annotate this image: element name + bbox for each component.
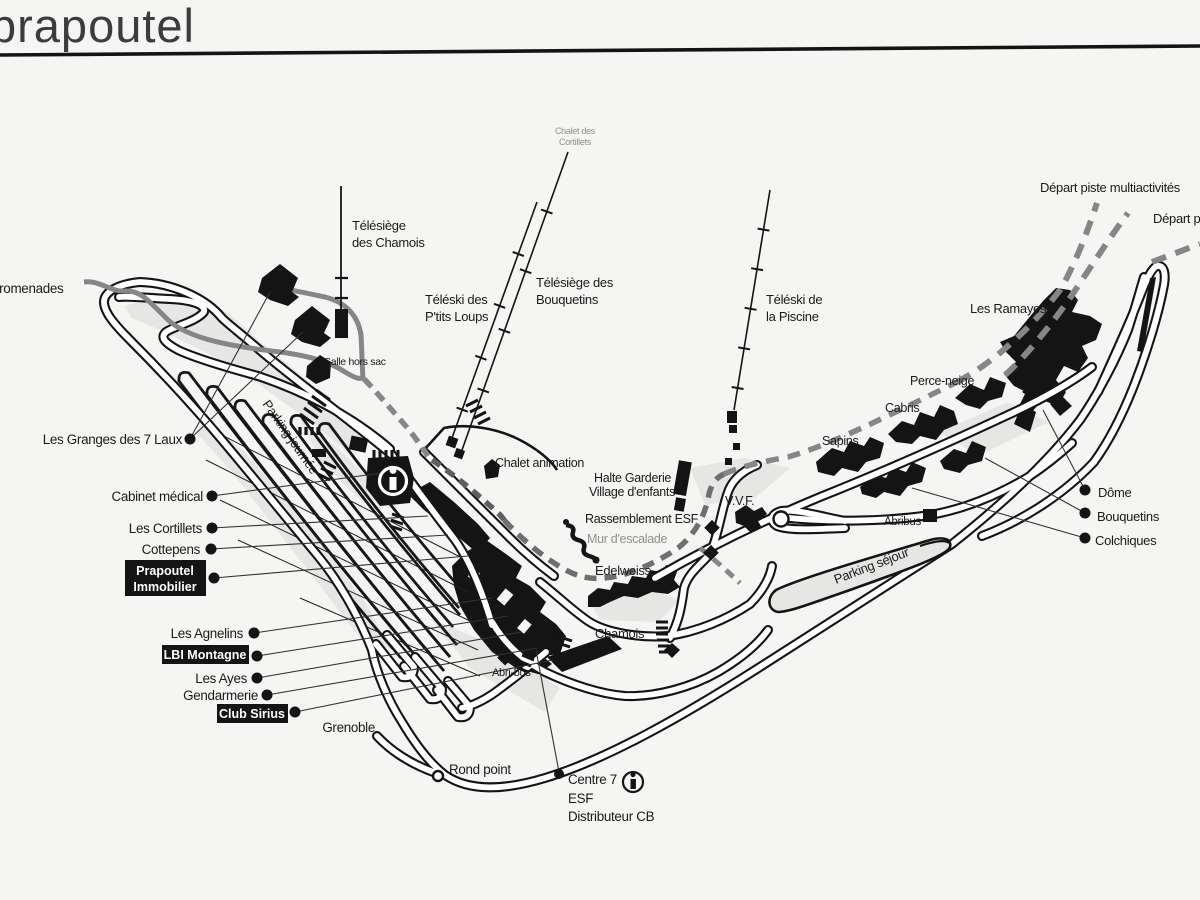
svg-text:Rond point: Rond point: [449, 762, 511, 777]
svg-text:promenades: promenades: [0, 281, 64, 296]
svg-text:Cortillets: Cortillets: [559, 137, 592, 147]
svg-text:Halte Garderie: Halte Garderie: [594, 471, 671, 485]
svg-text:Cabinet médical: Cabinet médical: [111, 489, 203, 504]
svg-text:Sapins: Sapins: [822, 434, 858, 448]
svg-text:Les Cortillets: Les Cortillets: [129, 521, 203, 536]
svg-text:Cabris: Cabris: [885, 401, 919, 415]
svg-text:Départ piste multiactivités: Départ piste multiactivités: [1040, 180, 1181, 195]
svg-text:V.V.F.: V.V.F.: [725, 494, 754, 508]
svg-text:Grenoble: Grenoble: [322, 720, 375, 735]
svg-text:Téléski de: Téléski de: [766, 292, 822, 307]
svg-text:Rassemblement ESF: Rassemblement ESF: [585, 512, 699, 526]
svg-text:Bouquetins: Bouquetins: [1097, 509, 1160, 524]
svg-text:LBI Montagne: LBI Montagne: [164, 648, 247, 662]
svg-text:Distributeur CB: Distributeur CB: [568, 809, 655, 824]
svg-text:Centre 7: Centre 7: [568, 772, 617, 787]
svg-text:Les Agnelins: Les Agnelins: [171, 626, 244, 641]
svg-text:Les Ramayes: Les Ramayes: [970, 301, 1047, 316]
svg-text:Dôme: Dôme: [1098, 485, 1132, 500]
svg-text:Cottepens: Cottepens: [142, 542, 201, 557]
svg-text:Chalet des: Chalet des: [555, 126, 596, 136]
svg-text:Téléski des: Téléski des: [425, 292, 488, 307]
svg-text:Chamois: Chamois: [595, 626, 645, 641]
svg-text:Télésiège: Télésiège: [352, 218, 406, 233]
svg-text:Les Granges des 7 Laux: Les Granges des 7 Laux: [43, 432, 183, 447]
svg-text:Salle hors sac: Salle hors sac: [324, 356, 386, 368]
svg-text:Village d'enfants: Village d'enfants: [589, 485, 675, 499]
svg-text:Perce-neige: Perce-neige: [910, 374, 974, 388]
svg-text:Télésiège des: Télésiège des: [536, 275, 614, 290]
svg-text:Immobilier: Immobilier: [133, 580, 196, 594]
svg-text:ESF: ESF: [568, 791, 593, 806]
svg-text:Colchiques: Colchiques: [1095, 533, 1157, 548]
svg-text:Chalet animation: Chalet animation: [495, 456, 584, 470]
svg-text:Prapoutel: Prapoutel: [136, 564, 194, 578]
svg-text:P'tits Loups: P'tits Loups: [425, 309, 489, 324]
svg-text:des Chamois: des Chamois: [352, 235, 425, 250]
svg-text:Mur d'escalade: Mur d'escalade: [587, 532, 668, 546]
svg-text:Abribus: Abribus: [884, 516, 921, 528]
svg-text:Edelweiss: Edelweiss: [595, 563, 652, 578]
svg-text:Les Ayes: Les Ayes: [195, 671, 247, 686]
svg-text:la Piscine: la Piscine: [766, 309, 819, 324]
svg-text:Bouquetins: Bouquetins: [536, 292, 599, 307]
svg-text:Départ pis: Départ pis: [1153, 211, 1200, 226]
svg-text:Club Sirius: Club Sirius: [219, 707, 285, 721]
svg-text:Gendarmerie: Gendarmerie: [183, 688, 258, 703]
svg-text:Abri-bus: Abri-bus: [492, 667, 531, 679]
svg-text:prapoutel: prapoutel: [0, 0, 195, 52]
